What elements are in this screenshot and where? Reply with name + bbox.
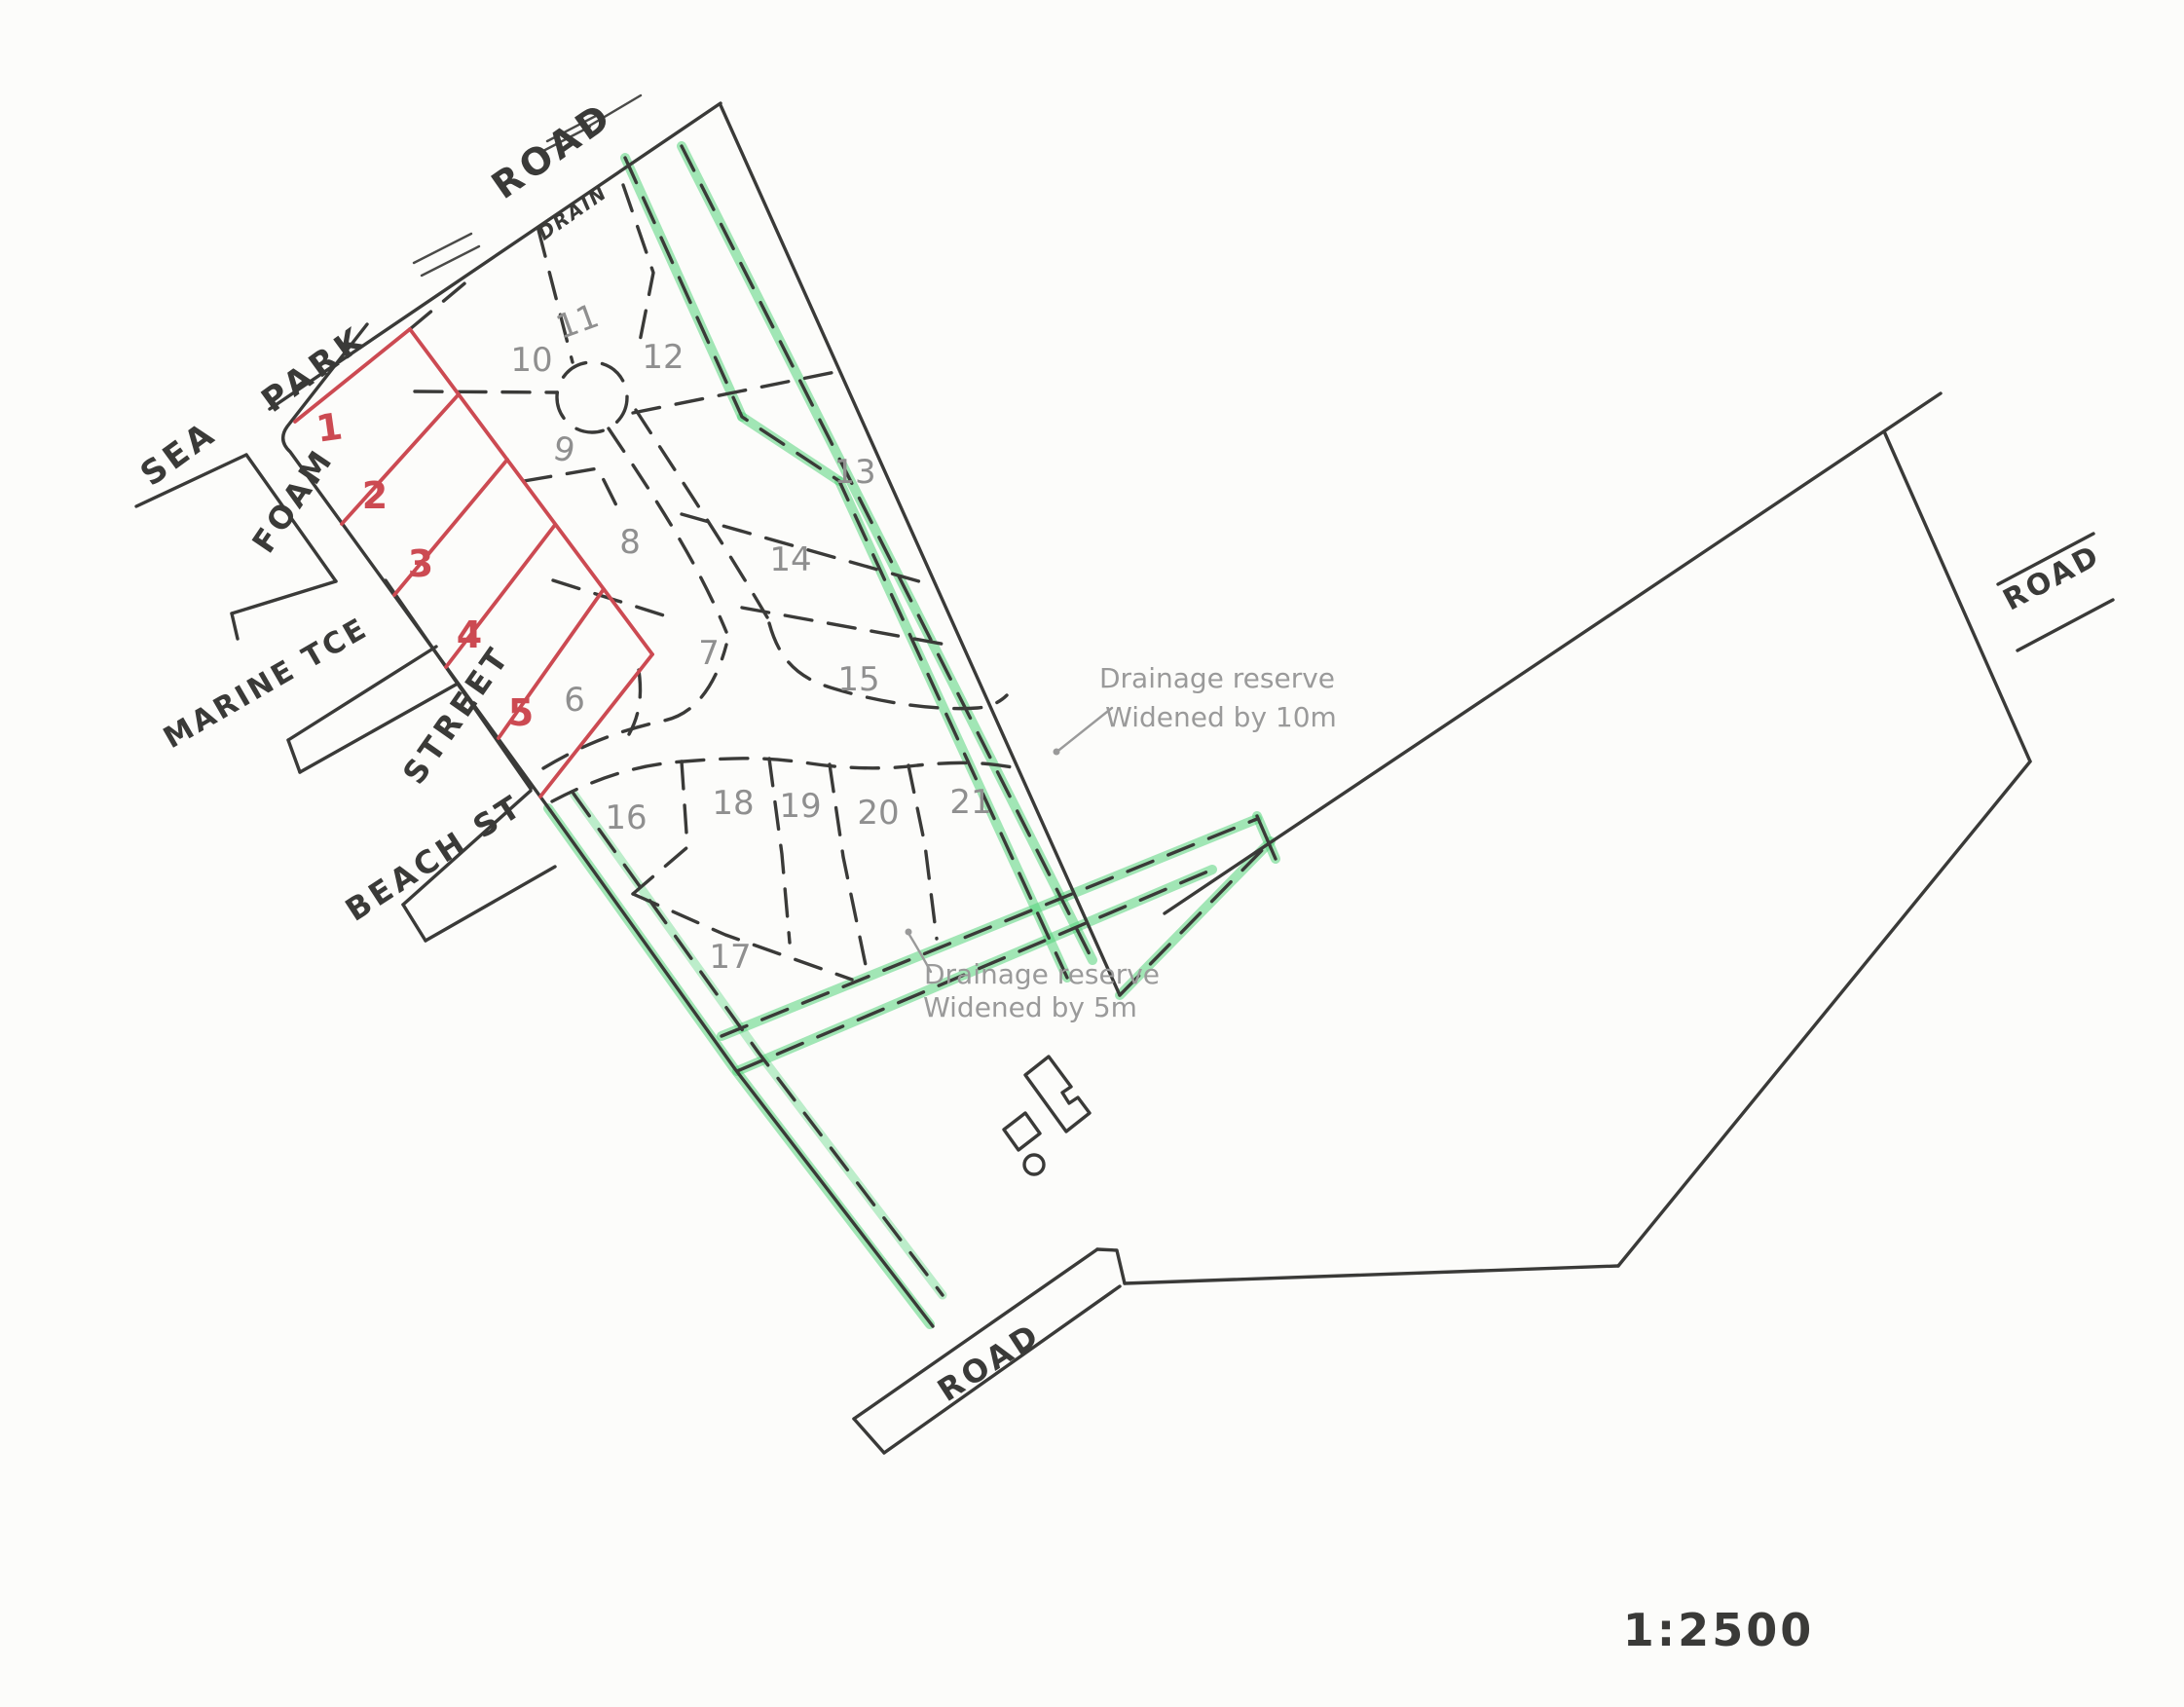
cul-de-sac-head [557, 362, 627, 432]
reserve5-leader-dot [906, 929, 912, 936]
lot-number-17: 17 [709, 938, 751, 977]
east-parcel-nw-boundary [1165, 393, 1941, 913]
lot-number-6: 6 [564, 681, 585, 720]
lot-number-8: 8 [619, 523, 641, 562]
lot-boundaries-dashed [410, 185, 1022, 980]
right-road-label: ROAD [1998, 538, 2107, 618]
lot-number-3: 3 [408, 542, 433, 585]
lot-number-2: 2 [362, 474, 388, 517]
reserve10-note-line2: Widened by 10m [1105, 701, 1337, 733]
lot-number-14: 14 [769, 540, 811, 579]
drain-dash-ne-inner [625, 158, 1067, 978]
reserve10-leader-line [1059, 708, 1112, 750]
reserve5-note-line1: Drainage reserve [924, 958, 1160, 990]
building-outline [1025, 1057, 1090, 1132]
beach-st-end-cap [403, 905, 426, 941]
reserve10-note-line1: Drainage reserve [1099, 662, 1335, 694]
plan-drawing: ROAD DRAIN SEA PARK FOAM MARINE TCE STRE… [0, 0, 2184, 1707]
lot9-10-divider [415, 391, 557, 392]
beach-st-label: BEACH ST [339, 787, 530, 929]
lot-number-13: 13 [833, 453, 875, 492]
lot8-9-divider [524, 468, 620, 513]
lot-number-7: 7 [698, 634, 720, 673]
lot-number-18: 18 [712, 784, 754, 823]
lot1-2-divider [342, 394, 459, 524]
lot20-21-divider [908, 765, 937, 939]
sea-label: SEA [133, 414, 224, 495]
lot-number-21: 21 [949, 783, 991, 822]
lot-number-15: 15 [837, 660, 879, 699]
lot-number-12: 12 [642, 338, 684, 377]
marine-tce-end-cap [288, 740, 300, 772]
lot-number-19: 19 [779, 787, 821, 826]
top-drain-label: DRAIN [534, 180, 612, 245]
lot-number-10: 10 [510, 341, 552, 380]
marine-tce-label: MARINE TCE [158, 612, 374, 756]
terrace-step-line [232, 581, 336, 613]
drainage-reserve-highlight [548, 146, 1276, 1324]
road-hatch-1 [414, 234, 471, 263]
scale-text: 1:2500 [1623, 1604, 1814, 1656]
lot10-west-boundary [410, 279, 469, 329]
subdivision-plan-sheet: ROAD DRAIN SEA PARK FOAM MARINE TCE STRE… [0, 0, 2184, 1707]
lot-number-11: 11 [551, 296, 604, 347]
red-lot-strip [295, 329, 652, 797]
lot-number-16: 16 [605, 798, 647, 837]
beach-st-se-side [426, 867, 555, 941]
lot-number-9: 9 [550, 428, 578, 471]
lot-number-5: 5 [508, 691, 534, 734]
reserve5-note-line2: Widened by 5m [923, 991, 1137, 1023]
terrace-step-end [232, 613, 238, 639]
south-boundary-line [1125, 1266, 1618, 1283]
lot-number-1: 1 [314, 404, 345, 450]
bottom-road-jog [1097, 1249, 1125, 1283]
lot-number-4: 4 [457, 613, 482, 656]
reserve10-leader-dot [1054, 749, 1060, 756]
building-annex-square [1004, 1113, 1040, 1150]
bottom-road-label: ROAD [931, 1316, 1048, 1409]
east-parcel-se-boundary [1618, 761, 2030, 1266]
lot-number-20: 20 [857, 794, 899, 833]
bottom-road-end-cap [854, 1419, 884, 1453]
drain-dash-sw-parallel [574, 794, 943, 1295]
internal-road-stem-east [636, 410, 767, 617]
building-tank-circle [1024, 1155, 1044, 1174]
building-footprint [1004, 1057, 1090, 1174]
lot5-bottom-side [540, 654, 652, 797]
